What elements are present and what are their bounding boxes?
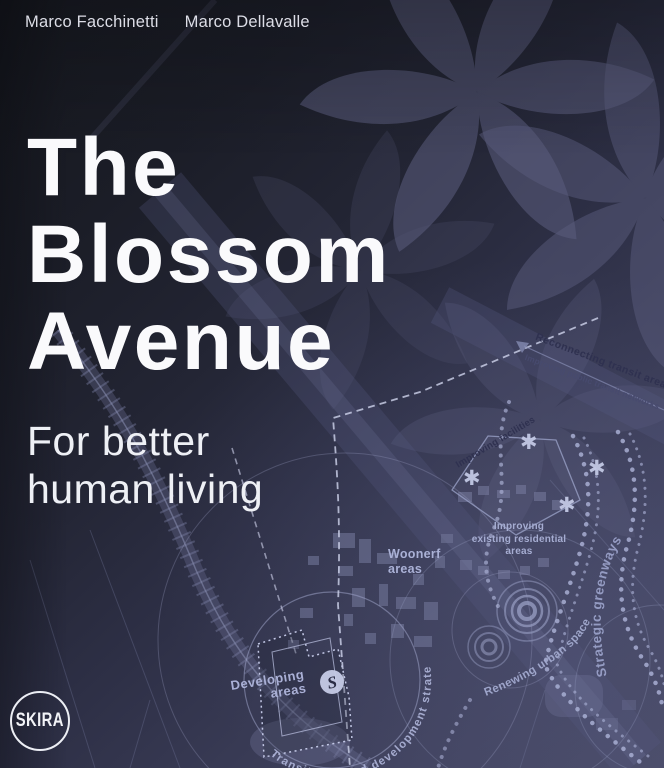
asterisk-icon: ✱ (588, 456, 606, 481)
subtitle-line-1: For better (27, 417, 263, 465)
skira-logo-text: SKIRA (16, 710, 64, 732)
skira-logo: SKIRA (10, 691, 70, 751)
residential-line-1: Improving (466, 521, 572, 534)
subtitle-line-2: human living (27, 465, 263, 513)
book-cover: S Transit oriented development strategy … (0, 0, 664, 768)
woonerf-line-1: Woonerf (388, 547, 441, 562)
book-subtitle: For better human living (27, 417, 263, 513)
asterisk-icon: ✱ (520, 430, 538, 455)
book-title: The Blossom Avenue (27, 124, 391, 385)
woonerf-line-2: areas (388, 562, 441, 577)
title-line-3: Avenue (27, 298, 391, 385)
asterisk-icon: ✱ (463, 466, 481, 491)
title-line-2: Blossom (27, 211, 391, 298)
author-2: Marco Dellavalle (185, 13, 310, 32)
author-names: Marco Facchinetti Marco Dellavalle (25, 13, 310, 32)
author-1: Marco Facchinetti (25, 13, 159, 32)
title-line-1: The (27, 124, 391, 211)
residential-line-3: areas (466, 546, 572, 559)
label-improving-residential: Improving existing residential areas (466, 521, 572, 559)
residential-line-2: existing residential (466, 534, 572, 547)
label-woonerf-areas: Woonerf areas (388, 547, 441, 577)
asterisk-icon: ✱ (558, 493, 576, 518)
